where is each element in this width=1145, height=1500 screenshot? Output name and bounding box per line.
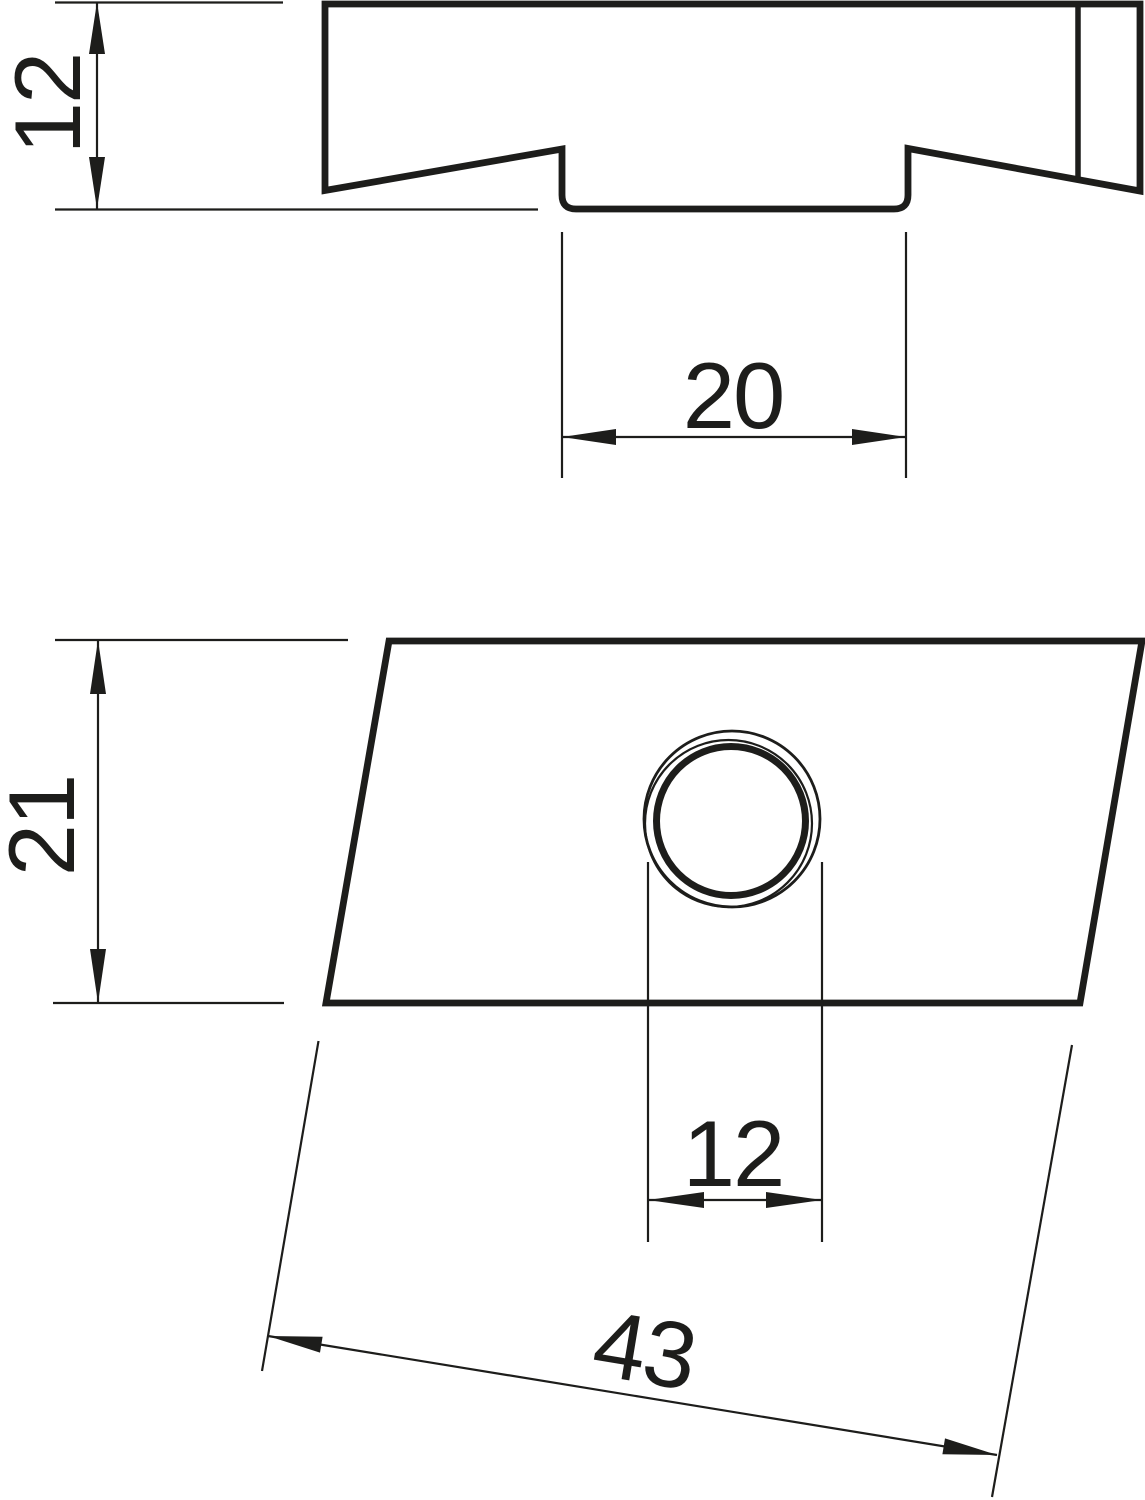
thread-outer-circle [644,731,820,907]
plan-view-outline [326,641,1142,1003]
dimension-slot-width: 20 [562,232,906,478]
side-view [325,4,1140,209]
arrowhead-up [89,2,105,54]
plan-view [326,641,1142,1003]
side-view-outline [325,4,1140,209]
dimension-label-side-height: 12 [0,54,100,155]
arrowhead-down [89,157,105,209]
dimension-label-hole-diameter: 12 [683,1101,784,1206]
thread-sketch-circle [645,740,812,907]
dimension-side-height: 12 [0,2,538,210]
arrowhead-right [852,429,906,445]
hole-circle [657,747,806,896]
dimension-label-slot-width: 20 [683,343,784,448]
extension-line [992,1045,1072,1497]
dimension-label-plan-depth: 21 [0,776,94,877]
extension-line [262,1041,319,1371]
arrowhead-right [942,1438,997,1455]
arrowhead-left [268,1336,323,1353]
dimension-label-plan-length: 43 [586,1290,702,1410]
technical-drawing-canvas: 12 20 21 12 43 [0,0,1145,1500]
arrowhead-up [90,640,106,694]
arrowhead-left [562,429,616,445]
dimension-hole-diameter: 12 [648,862,822,1242]
dimension-plan-depth: 21 [0,640,348,1003]
dimension-plan-length: 43 [262,1041,1072,1497]
arrowhead-down [90,949,106,1003]
